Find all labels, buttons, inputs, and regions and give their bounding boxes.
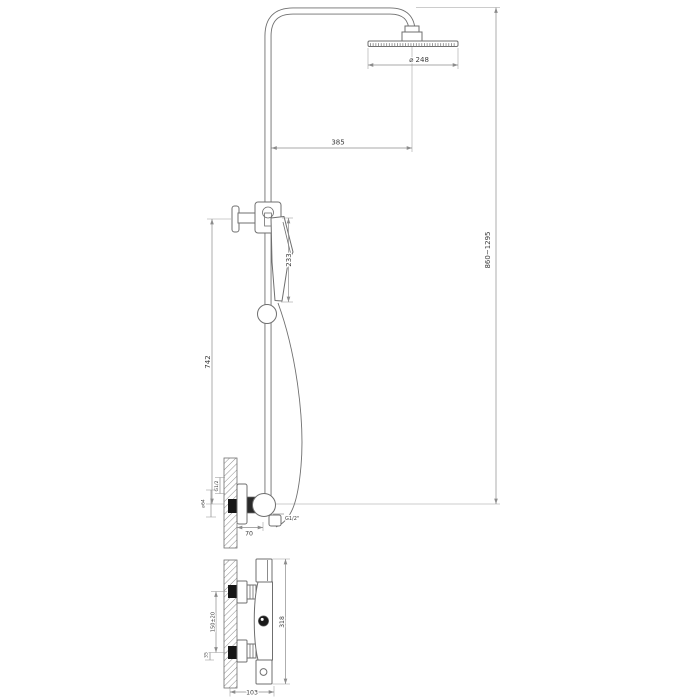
mixer-center-knob [258,616,268,626]
dimensions-mixer: 150±20 35 318 103 [204,559,291,697]
mixer-outlet [269,515,281,526]
inlet-spacing-label: 150±20 [211,612,217,632]
overall-height-label: 860~1295 [484,231,492,268]
hand-shower-length-label: 233 [285,253,293,266]
mixer-knob-highlight [261,618,264,621]
wall-depth-label: 103 [246,690,258,697]
upper-inlet-flange [237,581,247,603]
bottom-handle-hole [260,669,267,676]
lower-inlet-flange [237,640,247,662]
holder-rod [238,213,256,223]
lower-inlet-square [228,646,237,659]
overhead-shower [368,26,458,47]
wall-hatch-mixer [224,560,237,688]
escutcheon-diameter-label: ⌀64 [201,499,207,508]
mixer-front-view [224,559,273,688]
outlet-thread-label: G1/2" [285,516,299,522]
mixer-escutcheon [237,484,247,524]
shower-system-drawing: ⌀ 248 385 233 742 860~1295 G1/2 ⌀64 G1/2… [0,0,700,700]
mixer-top-handle [256,559,272,582]
front-elevation-view [224,11,458,548]
head-offset-label: 385 [331,139,344,147]
wall-section-front [224,458,237,548]
head-diameter-label: ⌀ 248 [409,56,429,64]
riser-height-label: 742 [204,355,212,368]
lower-inlet-nut [247,644,256,658]
upper-inlet-nut [247,585,256,599]
upper-inlet-square [228,585,237,598]
dimensions-front: ⌀ 248 385 233 742 860~1295 G1/2 ⌀64 G1/2… [201,8,497,538]
mixer-valve-side [237,484,281,526]
wall-inlet-front [228,499,237,513]
mixer-body-knob [253,494,276,517]
slider-ring [258,305,277,324]
technical-drawing-page: ⌀ 248 385 233 742 860~1295 G1/2 ⌀64 G1/2… [0,0,700,700]
outlet-depth-label: 70 [245,531,253,538]
inlet-offset-label: 35 [204,652,210,658]
body-span-label: 318 [279,616,286,628]
shower-hose [276,303,302,527]
